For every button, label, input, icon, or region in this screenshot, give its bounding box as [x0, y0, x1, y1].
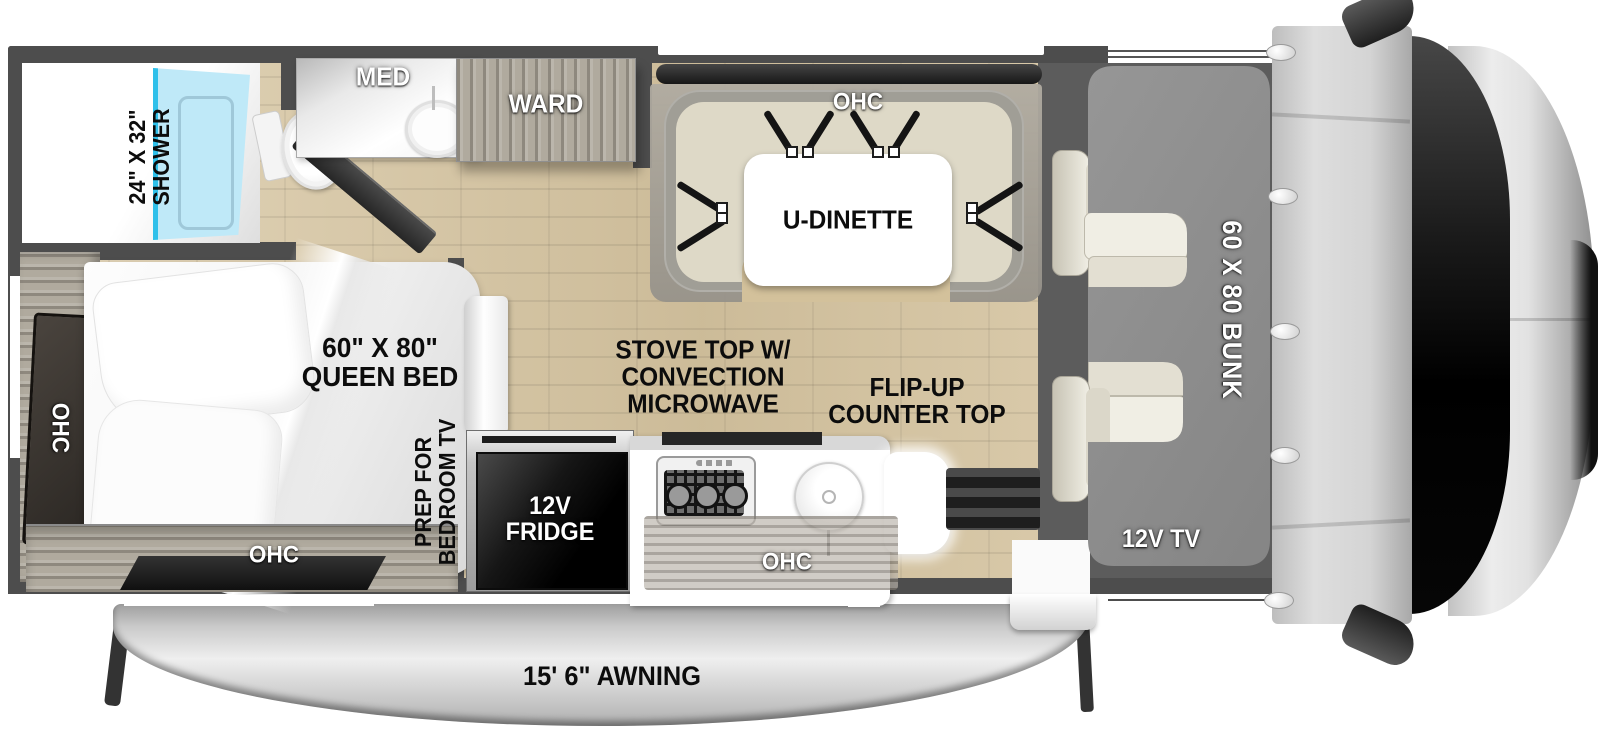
tv-prep-cabinet [464, 296, 508, 434]
bedroom-ohc-bottom-label: OHC [249, 544, 299, 569]
fridge-vent-slot [482, 436, 616, 443]
seatbelt-buckle [872, 146, 884, 158]
shower-label: 24" X 32"SHOWER [126, 108, 174, 205]
window-rear [10, 276, 20, 458]
stove-burner-left [666, 483, 692, 509]
clearance-light [1270, 323, 1300, 340]
dinette-ohc-label: OHC [833, 91, 883, 116]
clearance-light [1264, 592, 1294, 609]
counter-backsplash-vent [662, 432, 822, 445]
clearance-light [1266, 44, 1296, 61]
kitchen-ohc-label: OHC [762, 551, 812, 576]
med-cabinet-label: MED [356, 63, 410, 90]
wardrobe-label: WARD [509, 90, 584, 117]
entry-step-well [946, 468, 1040, 530]
queen-bed-label: 60" X 80"QUEEN BED [302, 333, 458, 391]
stove-label: STOVE TOP W/CONVECTIONMICROWAVE [615, 336, 790, 417]
window-dinette [658, 42, 1044, 55]
stove-knobs [696, 460, 734, 466]
vanity-faucet [432, 86, 435, 110]
awning-label: 15' 6" AWNING [523, 662, 701, 690]
cab-window-strip-bottom [1108, 595, 1268, 609]
bedroom-ohc-left-label: OHC [47, 403, 72, 453]
seatbelt-buckle [802, 146, 814, 158]
window-kitchen-small [848, 597, 880, 607]
entry-floor [1012, 540, 1090, 596]
shower-drain-outline [178, 96, 234, 230]
windshield [1406, 36, 1510, 614]
seatbelt-buckle [966, 212, 978, 224]
front-bumper-edge [1570, 240, 1598, 480]
stove-burner-center [694, 483, 720, 509]
driver-seat-back [1052, 376, 1090, 502]
passenger-seat-cushion [1084, 212, 1188, 260]
seatbelt-buckle [786, 146, 798, 158]
clearance-light [1268, 188, 1298, 205]
bunk-label: 60 X 80 BUNK [1218, 220, 1246, 399]
dinette-ohc-strip [656, 64, 1042, 84]
dinette-table-label: U-DINETTE [783, 206, 913, 233]
fridge-label: 12VFRIDGE [506, 493, 595, 545]
entry-step-outside [1010, 594, 1096, 630]
window-bedroom [124, 595, 374, 606]
prep-bedroom-tv-label: PREP FORBEDROOM TV [412, 419, 460, 566]
sink-drain [822, 490, 836, 504]
passenger-seat-back [1052, 150, 1090, 276]
stove-burner-right [722, 483, 748, 509]
cab-window-strip-top [1108, 46, 1272, 63]
floorplan-canvas: 15' 6" AWNING 24" X 32"SHOWER MED WARD O… [0, 0, 1600, 733]
tv-label: 12V TV [1122, 526, 1200, 552]
clearance-light [1270, 447, 1300, 464]
flip-up-label: FLIP-UPCOUNTER TOP [828, 374, 1005, 428]
seatbelt-buckle [716, 212, 728, 224]
seatbelt-buckle [888, 146, 900, 158]
